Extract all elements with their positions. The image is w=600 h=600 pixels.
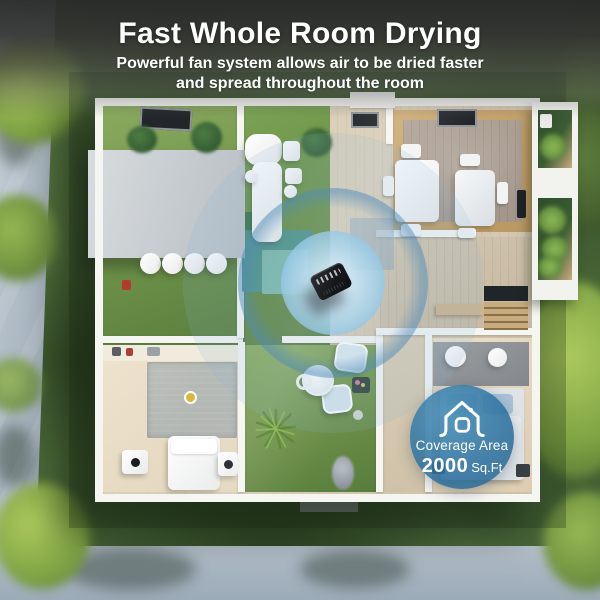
subtitle-line-2: and spread throughout the room xyxy=(0,75,600,94)
bush xyxy=(301,128,332,157)
counter-appliance xyxy=(147,347,160,356)
bed xyxy=(168,436,220,490)
cabinet xyxy=(484,286,528,301)
nightstand xyxy=(122,450,148,474)
badge-unit: Sq.Ft xyxy=(471,460,502,475)
coffee-table xyxy=(285,168,302,184)
bush xyxy=(127,126,157,153)
table-handle xyxy=(296,374,312,390)
skylight xyxy=(437,109,477,127)
ottoman xyxy=(488,348,507,367)
pouf xyxy=(284,185,297,198)
side-deck xyxy=(532,102,578,300)
fern-plant xyxy=(538,206,566,234)
counter-appliance xyxy=(112,347,121,356)
exterior-wall-bump xyxy=(350,92,395,108)
dining-chair xyxy=(460,154,480,166)
patio-chair xyxy=(333,341,369,374)
staircase xyxy=(484,302,528,330)
skylight xyxy=(351,112,379,128)
flower xyxy=(361,383,365,387)
badge-value: 2000 xyxy=(422,455,469,477)
tv xyxy=(517,190,526,218)
badge-label: Coverage Area xyxy=(416,439,509,454)
dining-chair xyxy=(458,228,476,238)
ottoman xyxy=(445,346,466,367)
teal-rug-light xyxy=(262,250,308,294)
house-icon xyxy=(436,394,488,438)
side-table xyxy=(283,141,300,161)
planter-box xyxy=(538,110,572,168)
fern-plant xyxy=(538,256,562,278)
dining-chair xyxy=(383,176,394,196)
stool xyxy=(162,253,183,274)
flower-table xyxy=(352,377,370,393)
dining-chair xyxy=(497,182,508,204)
flower xyxy=(355,380,360,385)
dining-table xyxy=(395,160,439,222)
fern-plant xyxy=(540,134,566,160)
nightstand xyxy=(218,452,238,476)
pouf xyxy=(245,170,258,183)
counter xyxy=(103,345,238,361)
dining-chair xyxy=(401,144,421,158)
header: Fast Whole Room Drying Powerful fan syst… xyxy=(0,0,600,94)
interior-wall xyxy=(386,106,393,144)
page-title: Fast Whole Room Drying xyxy=(0,17,600,51)
ceiling-light xyxy=(184,391,197,404)
tree-shadow xyxy=(300,550,410,588)
red-kettle xyxy=(122,280,131,290)
bed-pillows xyxy=(171,439,217,454)
subtitle-line-1: Powerful fan system allows air to be dri… xyxy=(0,55,600,74)
bench xyxy=(436,304,484,315)
stool xyxy=(140,253,161,274)
blue-rug xyxy=(350,218,394,270)
interior-wall xyxy=(376,330,383,492)
garage-canopy-roof xyxy=(88,150,245,258)
interior-wall xyxy=(238,342,245,492)
interior-wall xyxy=(282,336,380,343)
planter-item xyxy=(540,114,552,128)
badge-value-row: 2000Sq.Ft xyxy=(422,456,503,476)
coverage-area-badge: Coverage Area 2000Sq.Ft xyxy=(410,385,514,489)
glass-table xyxy=(455,170,495,226)
garden-item xyxy=(353,410,363,420)
bush xyxy=(191,122,222,153)
lamp xyxy=(224,460,233,469)
garden-statue xyxy=(332,456,354,490)
stool xyxy=(184,253,205,274)
lamp xyxy=(131,458,140,467)
stool xyxy=(206,253,227,274)
counter-appliance xyxy=(126,348,133,356)
interior-wall xyxy=(103,336,243,343)
palm-plant xyxy=(253,406,299,452)
product-marketing-image: Coverage Area 2000Sq.Ft Fast Whole Room … xyxy=(0,0,600,600)
planter-box xyxy=(538,198,572,280)
side-table xyxy=(516,464,530,477)
dining-chair xyxy=(401,224,421,236)
daybed xyxy=(245,134,282,165)
